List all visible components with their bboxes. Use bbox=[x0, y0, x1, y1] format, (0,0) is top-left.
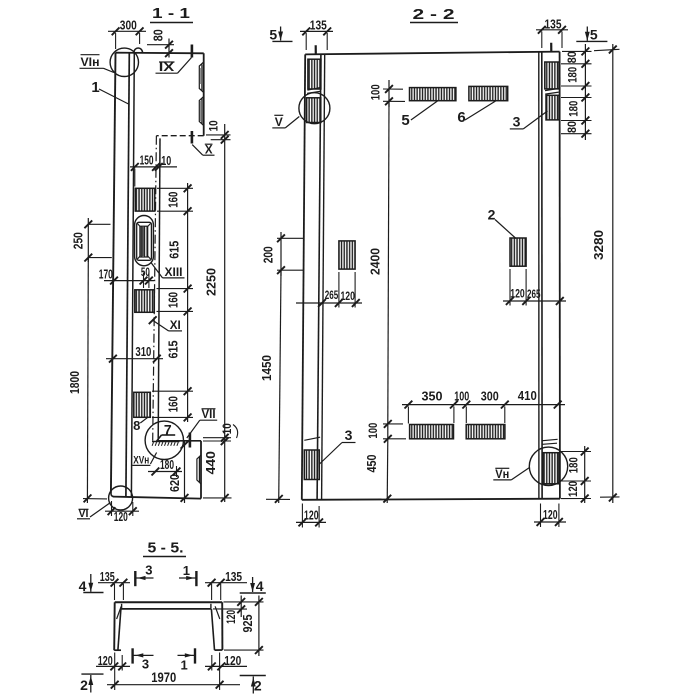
svg-text:5: 5 bbox=[590, 27, 598, 43]
svg-text:Vн: Vн bbox=[495, 469, 509, 481]
svg-text:100: 100 bbox=[366, 422, 380, 438]
svg-text:3: 3 bbox=[145, 563, 152, 578]
svg-text:615: 615 bbox=[168, 241, 182, 259]
svg-text:150: 150 bbox=[140, 154, 154, 168]
svg-text:200: 200 bbox=[262, 246, 276, 263]
svg-text:1: 1 bbox=[183, 563, 190, 578]
svg-text:350: 350 bbox=[422, 389, 443, 404]
svg-text:2: 2 bbox=[80, 677, 88, 693]
svg-text:120: 120 bbox=[340, 289, 355, 303]
svg-text:410: 410 bbox=[518, 388, 537, 403]
svg-text:2400: 2400 bbox=[367, 248, 382, 275]
svg-text:1970: 1970 bbox=[151, 669, 176, 685]
svg-text:1: 1 bbox=[91, 79, 99, 96]
svg-text:135: 135 bbox=[100, 570, 115, 584]
svg-text:250: 250 bbox=[72, 232, 86, 249]
svg-text:2: 2 bbox=[488, 207, 496, 223]
svg-text:180: 180 bbox=[566, 67, 580, 83]
svg-text:160: 160 bbox=[167, 292, 181, 308]
svg-text:2: 2 bbox=[254, 678, 262, 694]
svg-text:XVн: XVн bbox=[133, 455, 149, 467]
svg-text:10: 10 bbox=[161, 154, 171, 168]
svg-text:615: 615 bbox=[167, 340, 181, 358]
svg-text:120: 120 bbox=[114, 510, 128, 524]
svg-text:3: 3 bbox=[513, 114, 521, 130]
svg-text:180: 180 bbox=[160, 458, 174, 472]
svg-text:5: 5 bbox=[401, 112, 409, 129]
svg-text:7: 7 bbox=[164, 422, 172, 438]
svg-text:1800: 1800 bbox=[67, 371, 82, 394]
svg-text:180: 180 bbox=[566, 457, 580, 473]
svg-text:120: 120 bbox=[566, 481, 580, 497]
svg-text:265: 265 bbox=[325, 288, 339, 302]
svg-text:6: 6 bbox=[457, 109, 465, 126]
svg-text:8: 8 bbox=[133, 418, 140, 433]
svg-text:180: 180 bbox=[566, 100, 580, 116]
svg-text:80: 80 bbox=[565, 51, 579, 63]
svg-text:XI: XI bbox=[170, 320, 181, 332]
svg-text:300: 300 bbox=[120, 19, 137, 33]
svg-text:120: 120 bbox=[224, 610, 238, 624]
svg-text:925: 925 bbox=[241, 614, 255, 632]
svg-text:3280: 3280 bbox=[591, 230, 606, 260]
svg-text:V: V bbox=[275, 115, 283, 129]
svg-text:3: 3 bbox=[142, 657, 149, 672]
svg-text:80: 80 bbox=[152, 29, 166, 41]
svg-text:120: 120 bbox=[543, 508, 558, 522]
svg-text:10: 10 bbox=[220, 423, 234, 434]
svg-text:620: 620 bbox=[168, 474, 182, 492]
svg-text:1450: 1450 bbox=[259, 355, 274, 381]
svg-text:10: 10 bbox=[207, 120, 221, 131]
svg-text:310: 310 bbox=[135, 345, 151, 359]
svg-text:80: 80 bbox=[565, 121, 579, 133]
svg-text:5 - 5.: 5 - 5. bbox=[148, 540, 184, 557]
svg-text:135: 135 bbox=[225, 570, 242, 584]
svg-text:VII: VII bbox=[202, 409, 216, 421]
svg-text:4: 4 bbox=[79, 578, 87, 594]
svg-text:1: 1 bbox=[180, 658, 187, 673]
svg-text:2250: 2250 bbox=[204, 268, 219, 296]
svg-text:100: 100 bbox=[369, 84, 383, 100]
svg-text:5: 5 bbox=[269, 27, 277, 43]
svg-text:300: 300 bbox=[481, 389, 499, 404]
svg-text:120: 120 bbox=[304, 509, 319, 523]
svg-text:440: 440 bbox=[203, 451, 218, 475]
svg-text:160: 160 bbox=[167, 396, 181, 412]
svg-text:135: 135 bbox=[310, 19, 327, 33]
svg-text:IX: IX bbox=[159, 62, 175, 74]
svg-text:XIII: XIII bbox=[165, 267, 183, 279]
svg-text:450: 450 bbox=[365, 454, 379, 472]
svg-text:170: 170 bbox=[99, 267, 113, 281]
svg-text:4: 4 bbox=[256, 578, 264, 594]
svg-text:1 - 1: 1 - 1 bbox=[152, 5, 190, 22]
svg-text:2 - 2: 2 - 2 bbox=[413, 6, 455, 23]
svg-text:3: 3 bbox=[345, 427, 353, 443]
svg-text:160: 160 bbox=[167, 192, 181, 208]
svg-text:VIн: VIн bbox=[81, 57, 100, 69]
